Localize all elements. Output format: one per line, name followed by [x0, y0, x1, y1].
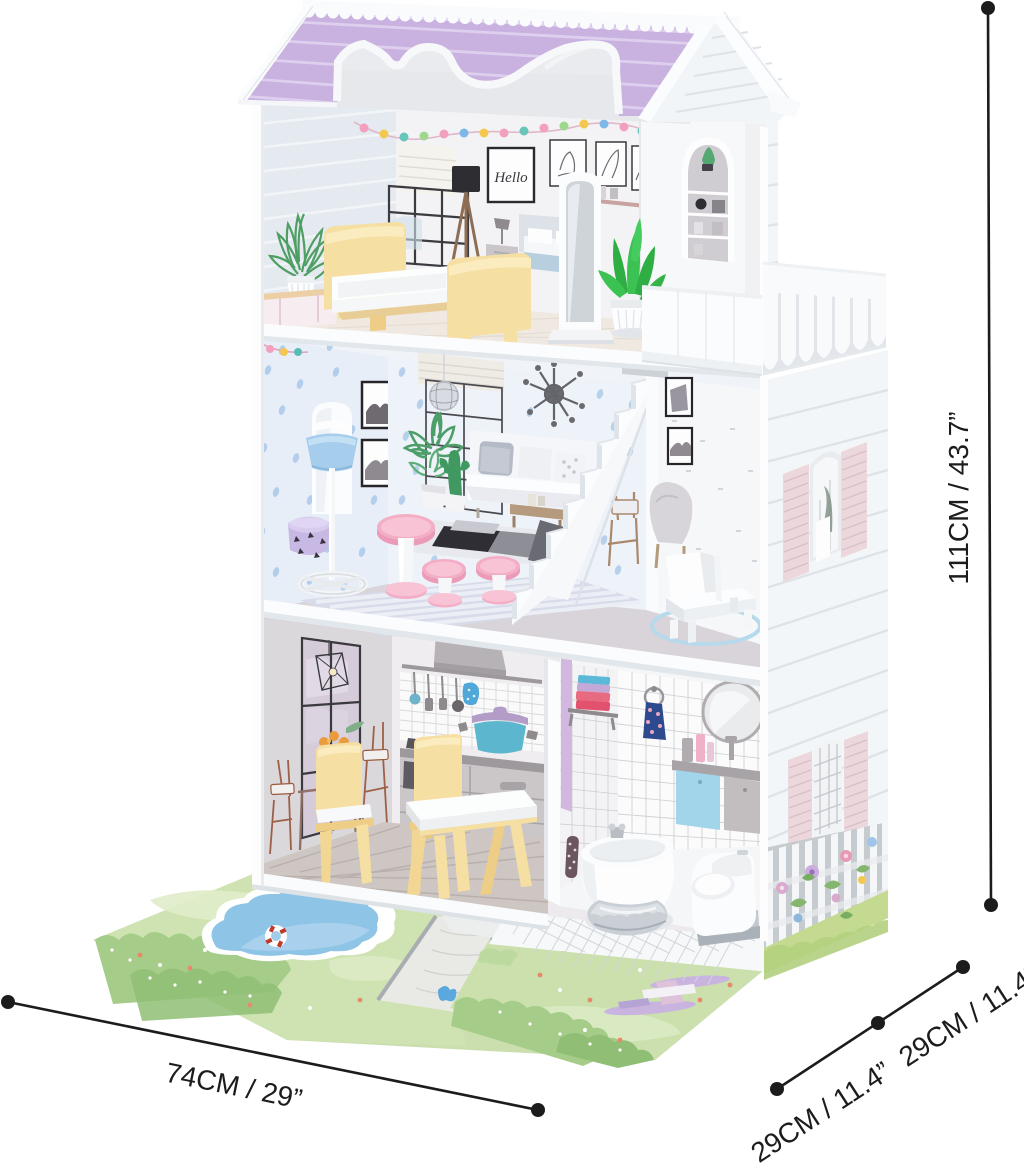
svg-text:Hello: Hello: [493, 170, 528, 186]
svg-text:111CM / 43.7”: 111CM / 43.7”: [943, 411, 974, 584]
